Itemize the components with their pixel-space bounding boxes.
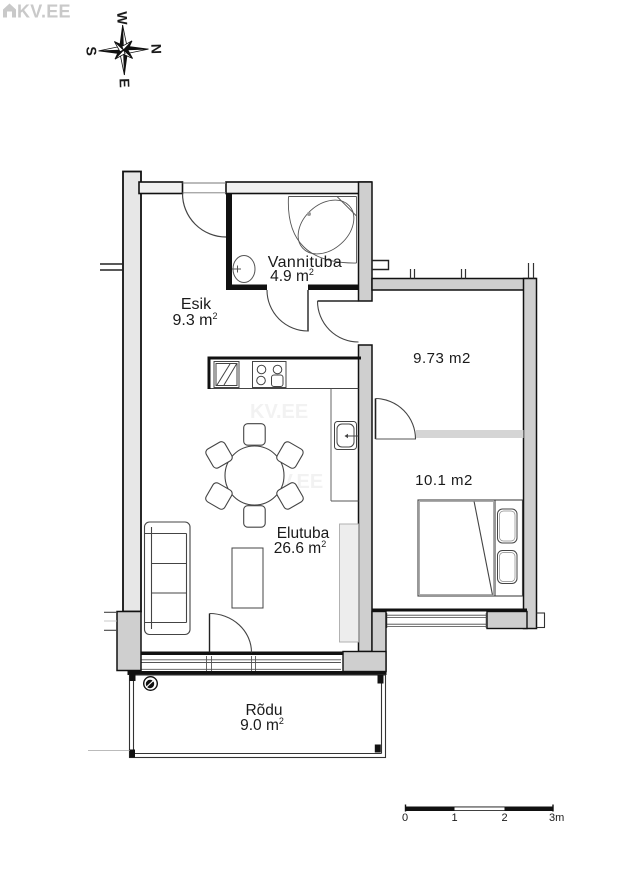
svg-text:9.3 m2: 9.3 m2 [172,311,217,329]
svg-text:KV.EE: KV.EE [17,2,71,22]
svg-text:9.0 m2: 9.0 m2 [240,716,284,734]
svg-text:2: 2 [501,812,507,824]
svg-text:KV.EE: KV.EE [250,401,308,423]
svg-text:4.9 m2: 4.9 m2 [270,267,314,285]
svg-text:0: 0 [402,812,408,824]
svg-text:9.73 m2: 9.73 m2 [413,350,471,367]
svg-text:1: 1 [451,812,457,824]
svg-text:E: E [116,78,132,88]
svg-text:26.6 m2: 26.6 m2 [274,539,326,557]
svg-text:W: W [114,11,130,26]
svg-text:S: S [83,46,99,56]
svg-text:10.1 m2: 10.1 m2 [415,472,473,489]
svg-text:N: N [148,44,164,55]
svg-text:3m: 3m [549,812,564,824]
svg-text:Esik: Esik [181,296,212,313]
